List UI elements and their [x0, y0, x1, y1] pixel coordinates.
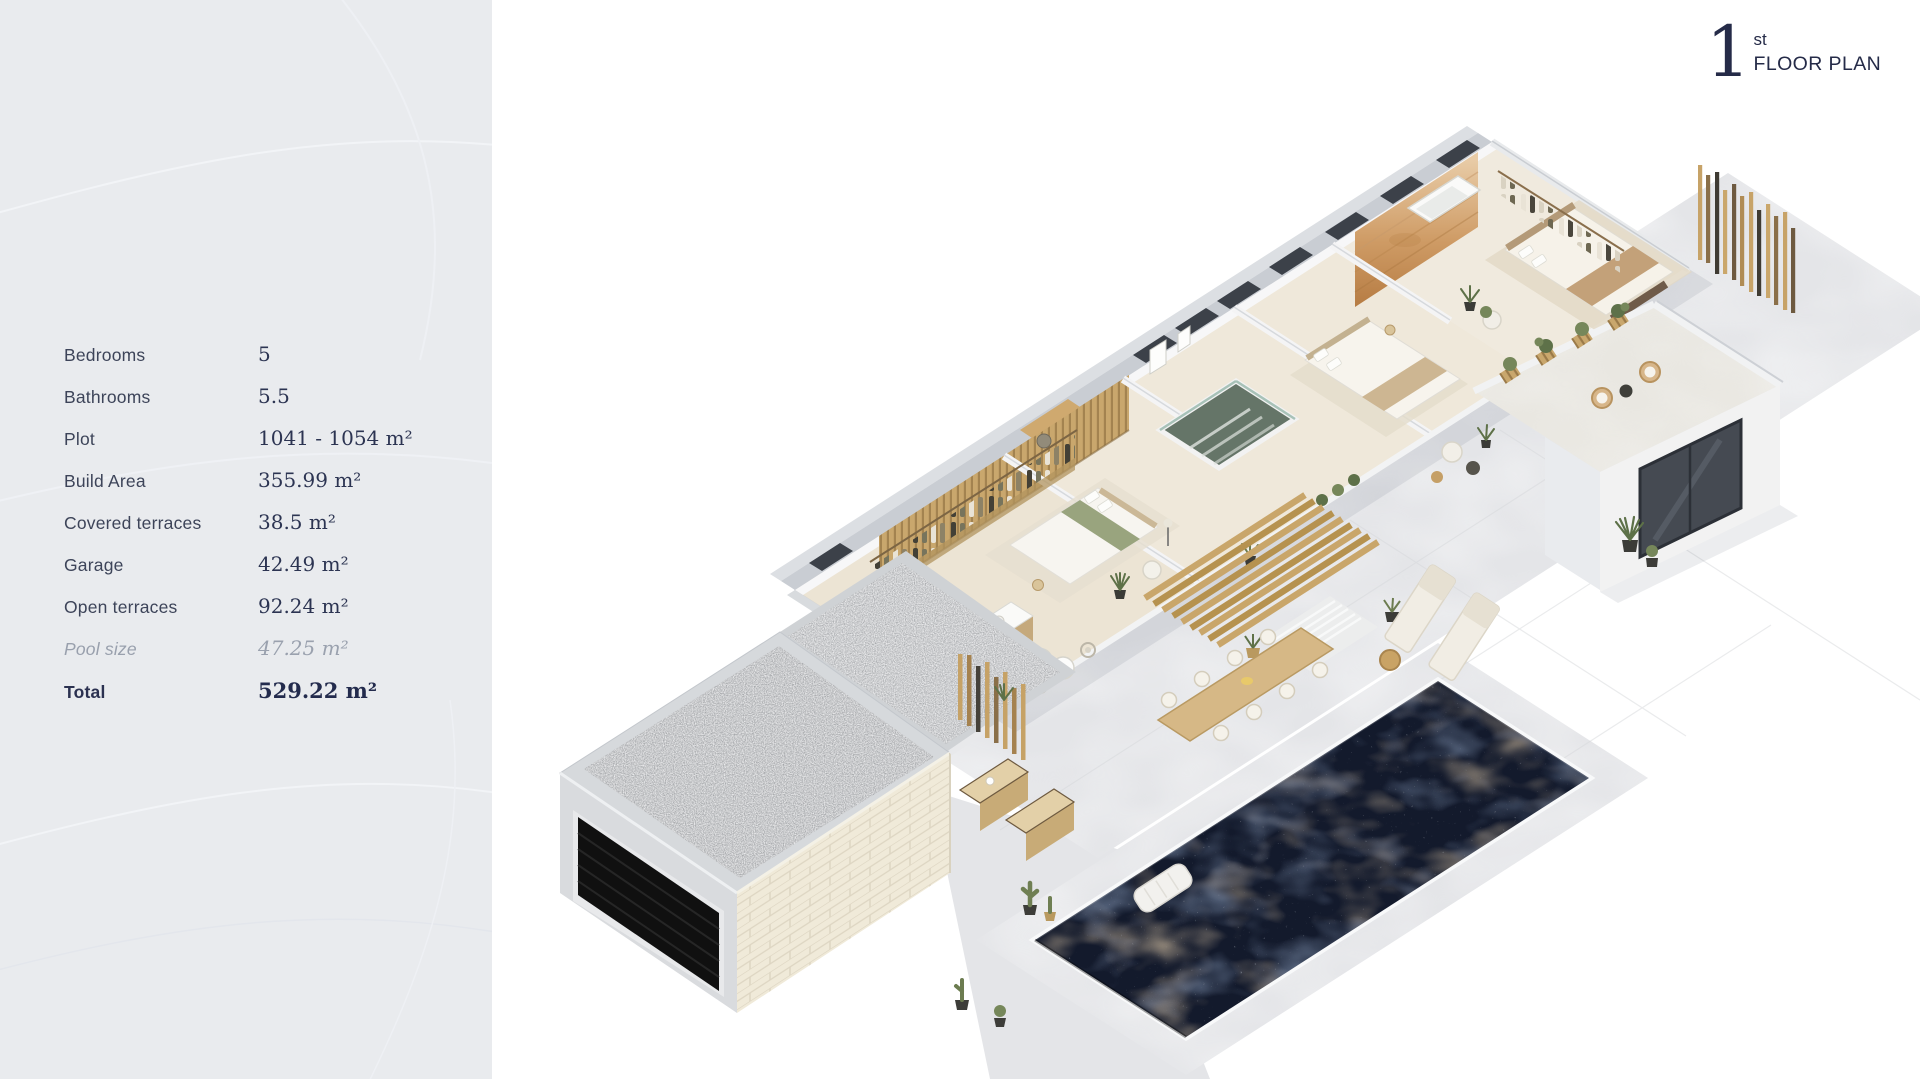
spec-value: 42.49 m²	[258, 552, 349, 576]
spec-value: 38.5 m²	[258, 510, 336, 534]
spec-list: Bedrooms 5 Bathrooms 5.5 Plot 1041 - 105…	[0, 342, 492, 720]
spec-value: 355.99 m²	[258, 468, 361, 492]
spec-label: Plot	[64, 429, 258, 450]
spec-row-total: Total 529.22 m²	[0, 678, 492, 720]
spec-row-plot: Plot 1041 - 1054 m²	[0, 426, 492, 468]
spec-value: 47.25 m²	[258, 636, 349, 660]
spec-row-covered-terraces: Covered terraces 38.5 m²	[0, 510, 492, 552]
desk-chair	[1037, 434, 1051, 448]
floor-plan-title: 1 st FLOOR PLAN	[1706, 20, 1881, 84]
spec-row-bedrooms: Bedrooms 5	[0, 342, 492, 384]
spec-value: 5	[258, 342, 271, 366]
spec-label: Pool size	[64, 639, 258, 660]
armchair	[1143, 561, 1161, 579]
spec-value: 529.22 m²	[258, 678, 377, 703]
spec-label: Bedrooms	[64, 345, 258, 366]
floor-number-suffix: st	[1754, 31, 1882, 48]
page: Bedrooms 5 Bathrooms 5.5 Plot 1041 - 105…	[0, 0, 1920, 1079]
spec-row-garage: Garage 42.49 m²	[0, 552, 492, 594]
wicker-side-table	[1380, 650, 1400, 670]
spec-label: Open terraces	[64, 597, 258, 618]
spec-value: 5.5	[258, 384, 290, 408]
spec-row-bathrooms: Bathrooms 5.5	[0, 384, 492, 426]
spec-row-open-terraces: Open terraces 92.24 m²	[0, 594, 492, 636]
spec-row-pool-size: Pool size 47.25 m²	[0, 636, 492, 678]
floor-number: 1	[1706, 20, 1751, 84]
spec-label: Bathrooms	[64, 387, 258, 408]
page-title: FLOOR PLAN	[1754, 55, 1882, 75]
spec-label: Total	[64, 682, 258, 703]
spec-value: 1041 - 1054 m²	[258, 426, 413, 450]
spec-label: Build Area	[64, 471, 258, 492]
specs-panel: Bedrooms 5 Bathrooms 5.5 Plot 1041 - 105…	[0, 0, 492, 1079]
spec-row-build-area: Build Area 355.99 m²	[0, 468, 492, 510]
spec-label: Garage	[64, 555, 258, 576]
spec-label: Covered terraces	[64, 513, 258, 534]
spec-value: 92.24 m²	[258, 594, 349, 618]
